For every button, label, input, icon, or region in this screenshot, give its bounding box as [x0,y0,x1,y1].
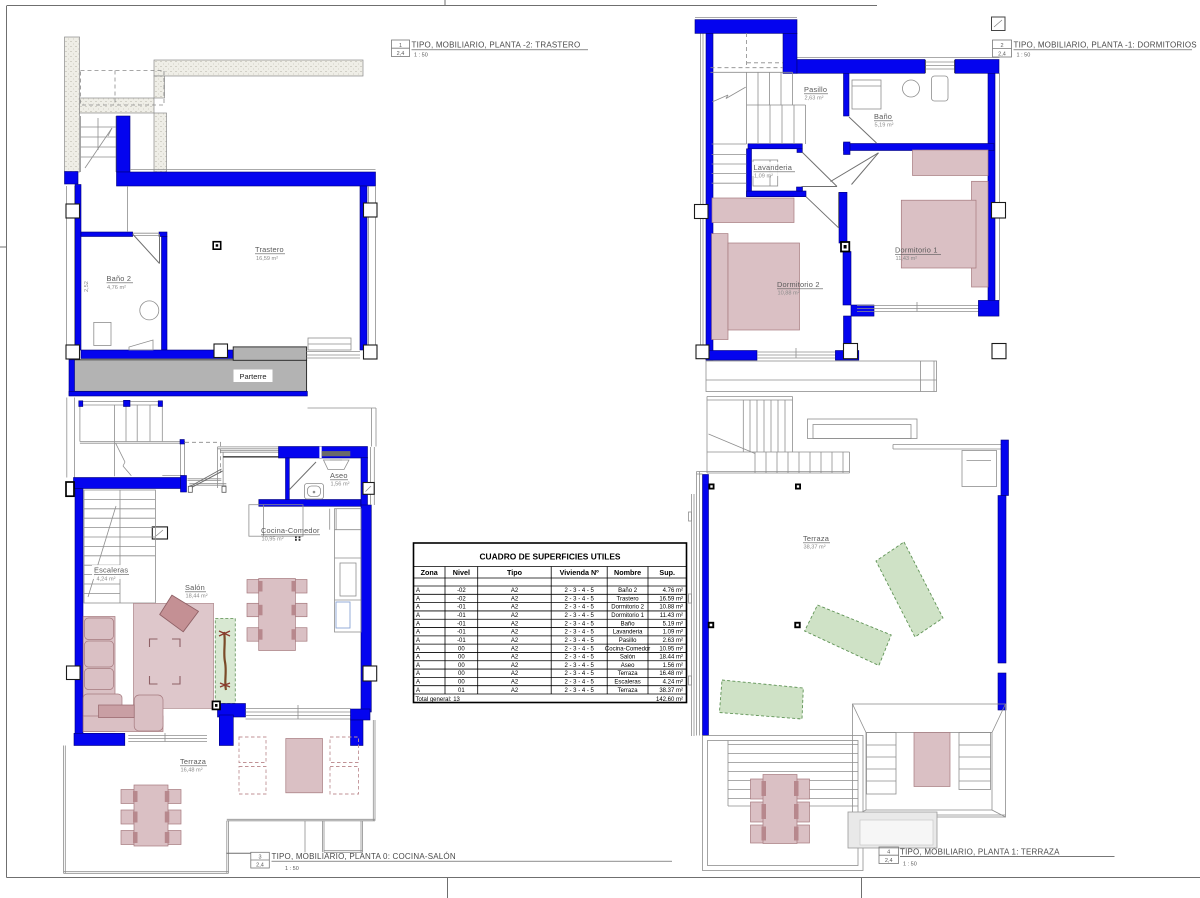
svg-text:2,63 m²: 2,63 m² [805,96,824,102]
svg-text:Terraza: Terraza [618,671,639,677]
svg-text:2,4: 2,4 [256,863,264,869]
svg-text:A: A [416,596,420,602]
svg-text:Pasillo: Pasillo [619,638,637,644]
svg-text:A2: A2 [511,621,519,627]
svg-text:2 - 3 - 4 - 5: 2 - 3 - 4 - 5 [565,605,595,611]
svg-text:1: 1 [399,43,402,49]
svg-text:Lavanderia: Lavanderia [754,163,793,172]
svg-text:2 - 3 - 4 - 5: 2 - 3 - 4 - 5 [565,596,595,602]
svg-text:Escaleras: Escaleras [94,566,128,575]
svg-text:TIPO, MOBILIARIO, PLANTA 1: TE: TIPO, MOBILIARIO, PLANTA 1: TERRAZA [900,847,1060,856]
svg-text:2 - 3 - 4 - 5: 2 - 3 - 4 - 5 [565,679,595,685]
svg-text:00: 00 [458,655,465,661]
svg-text:A: A [416,671,420,677]
svg-text:1 : 50: 1 : 50 [285,866,299,872]
svg-text:142.60 m²: 142.60 m² [656,697,683,703]
svg-text:-01: -01 [457,638,466,644]
svg-text:-02: -02 [457,588,466,594]
svg-text:Escaleras: Escaleras [614,679,640,685]
svg-text:Pasillo: Pasillo [804,85,827,94]
svg-text:16.59 m²: 16.59 m² [659,596,683,602]
svg-text:-01: -01 [457,621,466,627]
svg-text:Vivienda Nº: Vivienda Nº [560,568,600,577]
svg-text:10,88 m²: 10,88 m² [778,291,800,297]
svg-text:Sup.: Sup. [659,568,675,577]
svg-text:Lavanderia: Lavanderia [613,630,643,636]
svg-text:A2: A2 [511,638,519,644]
svg-text:Nivel: Nivel [453,568,470,577]
svg-text:4.76 m²: 4.76 m² [663,588,683,594]
svg-text:Nombre: Nombre [614,568,641,577]
svg-text:00: 00 [458,671,465,677]
svg-text:5,19 m²: 5,19 m² [875,123,894,129]
svg-text:10.95 m²: 10.95 m² [659,646,683,652]
svg-text:2 - 3 - 4 - 5: 2 - 3 - 4 - 5 [565,638,595,644]
svg-text:TIPO, MOBILIARIO, PLANTA 0: CO: TIPO, MOBILIARIO, PLANTA 0: COCINA-SALÓN [272,852,456,861]
svg-text:5.19 m²: 5.19 m² [663,621,683,627]
svg-text:11,43 m²: 11,43 m² [896,256,918,262]
svg-text:00: 00 [458,646,465,652]
svg-text:Dormitorio 1: Dormitorio 1 [611,613,644,619]
svg-text:A2: A2 [511,679,519,685]
svg-text:2 - 3 - 4 - 5: 2 - 3 - 4 - 5 [565,621,595,627]
svg-text:1 : 50: 1 : 50 [414,53,428,59]
svg-text:Salón: Salón [185,583,205,592]
svg-text:A2: A2 [511,655,519,661]
svg-text:A: A [416,679,420,685]
svg-text:Baño 2: Baño 2 [618,588,638,594]
svg-text:A2: A2 [511,613,519,619]
svg-text:2 - 3 - 4 - 5: 2 - 3 - 4 - 5 [565,613,595,619]
svg-text:4,24 m²: 4,24 m² [97,577,116,583]
svg-text:01: 01 [458,688,465,694]
svg-text:A2: A2 [511,630,519,636]
svg-text:Dormitorio 2: Dormitorio 2 [777,280,820,289]
svg-text:16,48 m²: 16,48 m² [181,768,203,774]
svg-text:Parterre: Parterre [239,372,266,381]
svg-text:A: A [416,655,420,661]
svg-text:2: 2 [1000,43,1003,49]
svg-text:Aseo: Aseo [330,471,348,480]
svg-text:A: A [416,646,420,652]
svg-text:TIPO, MOBILIARIO, PLANTA -1: D: TIPO, MOBILIARIO, PLANTA -1: DORMITORIOS [1014,41,1197,50]
svg-text:1.56 m²: 1.56 m² [663,663,683,669]
svg-text:Tipo: Tipo [507,568,523,577]
svg-text:1 : 50: 1 : 50 [903,862,917,868]
svg-text:2,52: 2,52 [84,281,90,292]
svg-text:-01: -01 [457,613,466,619]
svg-text:Baño: Baño [874,112,892,121]
svg-text:16,59 m²: 16,59 m² [256,256,278,262]
svg-text:A2: A2 [511,671,519,677]
svg-text:A: A [416,605,420,611]
svg-text:CUADRO DE SUPERFICIES UTILES: CUADRO DE SUPERFICIES UTILES [480,552,621,562]
svg-text:-01: -01 [457,630,466,636]
svg-text:1,56 m²: 1,56 m² [331,482,350,488]
svg-text:A: A [416,688,420,694]
svg-text:16.48 m²: 16.48 m² [659,671,683,677]
svg-text:Terraza: Terraza [618,688,639,694]
svg-text:Zona: Zona [421,568,439,577]
svg-text:Baño: Baño [621,621,636,627]
svg-text:-02: -02 [457,596,466,602]
svg-text:1.09 m²: 1.09 m² [663,630,683,636]
svg-text:00: 00 [458,679,465,685]
svg-text:A: A [416,663,420,669]
svg-text:4.24 m²: 4.24 m² [663,679,683,685]
svg-text:Total general: 13: Total general: 13 [416,697,461,703]
svg-text:2 - 3 - 4 - 5: 2 - 3 - 4 - 5 [565,671,595,677]
svg-text:A2: A2 [511,646,519,652]
svg-text:Cocina-Comedor: Cocina-Comedor [605,646,650,652]
svg-text:A: A [416,621,420,627]
svg-text:Cocina-Comedor: Cocina-Comedor [261,526,320,535]
svg-text:Terraza: Terraza [803,534,830,543]
svg-text:A: A [416,630,420,636]
svg-text:Salón: Salón [620,655,635,661]
svg-text:Aseo: Aseo [621,663,635,669]
svg-text:3: 3 [258,855,261,861]
svg-text:-01: -01 [457,605,466,611]
svg-text:10,95 m²: 10,95 m² [262,537,284,543]
svg-text:38,37 m²: 38,37 m² [804,545,826,551]
svg-text:A2: A2 [511,596,519,602]
svg-text:A2: A2 [511,588,519,594]
svg-text:2.63 m²: 2.63 m² [663,638,683,644]
svg-text:A2: A2 [511,688,519,694]
svg-text:00: 00 [458,663,465,669]
svg-text:2 - 3 - 4 - 5: 2 - 3 - 4 - 5 [565,688,595,694]
svg-text:A: A [416,613,420,619]
svg-text:1,09 m²: 1,09 m² [754,174,773,180]
svg-text:2 - 3 - 4 - 5: 2 - 3 - 4 - 5 [565,655,595,661]
svg-text:2,4: 2,4 [998,51,1006,57]
svg-text:10.88 m²: 10.88 m² [659,605,683,611]
svg-text:2 - 3 - 4 - 5: 2 - 3 - 4 - 5 [565,588,595,594]
svg-text:2,4: 2,4 [397,51,405,57]
svg-text:2 - 3 - 4 - 5: 2 - 3 - 4 - 5 [565,663,595,669]
svg-text:Trastero: Trastero [617,596,640,602]
svg-text:A: A [416,638,420,644]
svg-text:38.37 m²: 38.37 m² [659,688,683,694]
svg-text:TIPO, MOBILIARIO, PLANTA -2: T: TIPO, MOBILIARIO, PLANTA -2: TRASTERO [412,41,581,50]
svg-text:A: A [416,588,420,594]
svg-text:Dormitorio 2: Dormitorio 2 [611,605,644,611]
svg-text:18.44 m²: 18.44 m² [659,655,683,661]
svg-text:11.43 m²: 11.43 m² [660,613,683,619]
svg-text:2,4: 2,4 [885,858,893,864]
svg-text:Baño 2: Baño 2 [107,274,132,283]
svg-text:2 - 3 - 4 - 5: 2 - 3 - 4 - 5 [565,646,595,652]
svg-text:1 : 50: 1 : 50 [1017,53,1031,59]
svg-text:18,44 m²: 18,44 m² [186,594,208,600]
svg-text:Dormitorio 1: Dormitorio 1 [895,246,938,255]
svg-text:A2: A2 [511,605,519,611]
svg-text:A2: A2 [511,663,519,669]
svg-text:2 - 3 - 4 - 5: 2 - 3 - 4 - 5 [565,630,595,636]
svg-text:4: 4 [887,850,890,856]
svg-text:4,76 m²: 4,76 m² [107,285,126,291]
svg-text:Trastero: Trastero [255,245,284,254]
svg-text:Terraza: Terraza [180,757,207,766]
